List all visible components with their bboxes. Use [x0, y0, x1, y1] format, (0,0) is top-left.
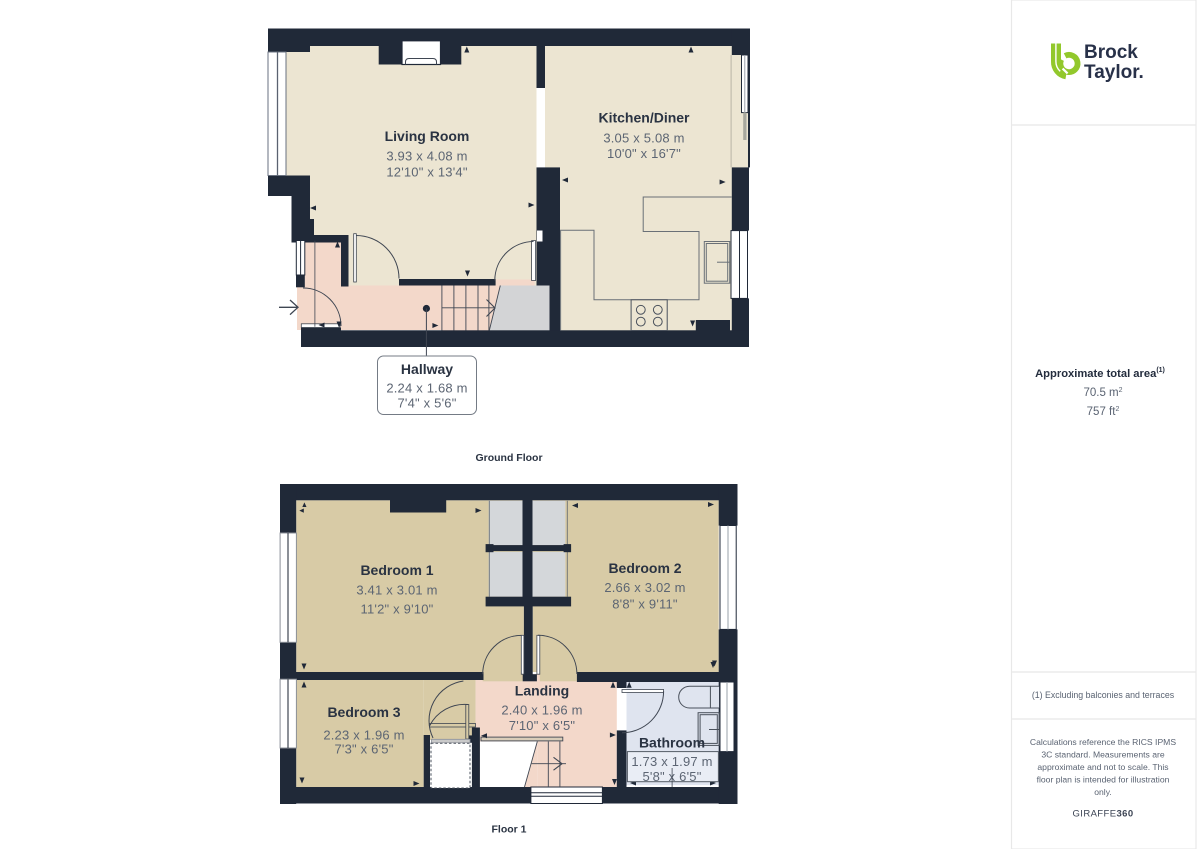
svg-text:floor plan is intended for ill: floor plan is intended for illustration [1037, 775, 1170, 785]
svg-text:1.73 x 1.97 m: 1.73 x 1.97 m [631, 754, 712, 769]
svg-text:Hallway: Hallway [401, 361, 453, 377]
svg-text:Approximate total area(1): Approximate total area(1) [1035, 367, 1165, 380]
svg-text:11'2" x 9'10": 11'2" x 9'10" [361, 602, 434, 617]
svg-text:Brock: Brock [1084, 42, 1138, 63]
svg-text:3.93 x 4.08 m: 3.93 x 4.08 m [386, 149, 467, 164]
svg-text:2.24 x 1.68 m: 2.24 x 1.68 m [386, 381, 467, 396]
svg-text:Landing: Landing [515, 683, 569, 699]
svg-text:10'0" x 16'7": 10'0" x 16'7" [607, 146, 681, 161]
svg-text:3.05 x 5.08 m: 3.05 x 5.08 m [603, 131, 684, 146]
svg-text:(1) Excluding balconies and te: (1) Excluding balconies and terraces [1032, 690, 1175, 700]
svg-text:12'10" x 13'4": 12'10" x 13'4" [386, 165, 468, 180]
svg-text:7'3" x 6'5": 7'3" x 6'5" [334, 742, 393, 757]
svg-text:2.66 x 3.02 m: 2.66 x 3.02 m [604, 580, 685, 595]
svg-text:3C standard. Measurements are: 3C standard. Measurements are [1041, 750, 1164, 760]
svg-text:8'8" x 9'11": 8'8" x 9'11" [612, 597, 678, 612]
svg-text:Taylor.: Taylor. [1084, 62, 1144, 83]
svg-text:Bedroom 1: Bedroom 1 [360, 562, 433, 578]
svg-text:Bathroom: Bathroom [639, 735, 705, 751]
svg-text:70.5 m2: 70.5 m2 [1083, 387, 1122, 399]
svg-text:GIRAFFE360: GIRAFFE360 [1072, 809, 1133, 820]
svg-text:Kitchen/Diner: Kitchen/Diner [598, 110, 690, 126]
svg-text:2.23 x 1.96 m: 2.23 x 1.96 m [323, 728, 404, 743]
svg-text:approximate and not to scale.: approximate and not to scale. This [1037, 762, 1168, 772]
svg-text:7'4" x 5'6": 7'4" x 5'6" [397, 396, 456, 411]
svg-text:only.: only. [1094, 787, 1112, 797]
svg-text:Floor 1: Floor 1 [491, 824, 526, 836]
svg-text:Living Room: Living Room [385, 128, 470, 144]
svg-text:3.41 x 3.01 m: 3.41 x 3.01 m [356, 583, 437, 598]
svg-text:Calculations reference the RIC: Calculations reference the RICS IPMS [1030, 737, 1176, 747]
svg-text:Bedroom 2: Bedroom 2 [608, 560, 681, 576]
svg-text:7'10" x 6'5": 7'10" x 6'5" [509, 718, 576, 733]
svg-text:2.40 x 1.96 m: 2.40 x 1.96 m [501, 703, 582, 718]
svg-text:Bedroom 3: Bedroom 3 [327, 704, 400, 720]
svg-text:757 ft2: 757 ft2 [1087, 406, 1120, 418]
svg-text:Ground Floor: Ground Floor [475, 452, 542, 464]
